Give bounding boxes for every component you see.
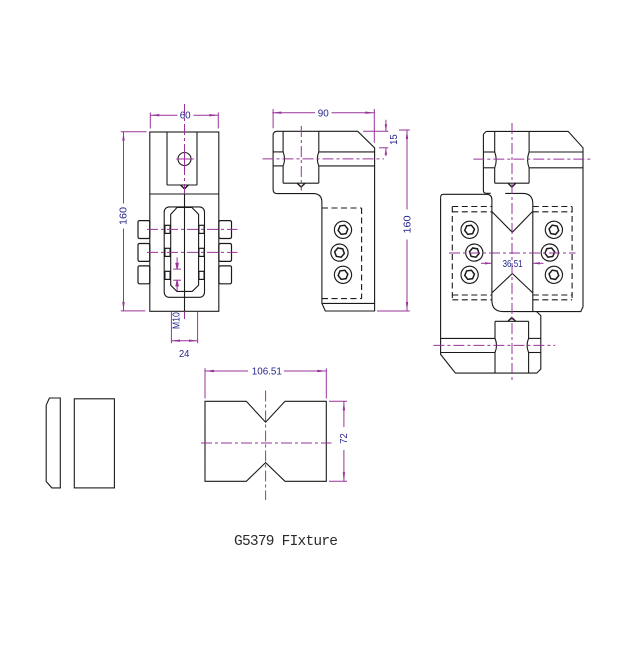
svg-text:24: 24 bbox=[179, 348, 190, 360]
svg-text:60: 60 bbox=[180, 110, 191, 122]
svg-text:90: 90 bbox=[318, 107, 329, 119]
svg-text:15: 15 bbox=[388, 134, 400, 145]
svg-text:72: 72 bbox=[338, 433, 350, 444]
svg-text:160: 160 bbox=[401, 215, 413, 233]
svg-text:G5379 FIxture: G5379 FIxture bbox=[234, 534, 338, 550]
svg-text:160: 160 bbox=[118, 207, 130, 225]
svg-text:36.51: 36.51 bbox=[503, 258, 523, 270]
svg-text:M10: M10 bbox=[171, 312, 183, 329]
svg-text:106.51: 106.51 bbox=[252, 366, 282, 378]
